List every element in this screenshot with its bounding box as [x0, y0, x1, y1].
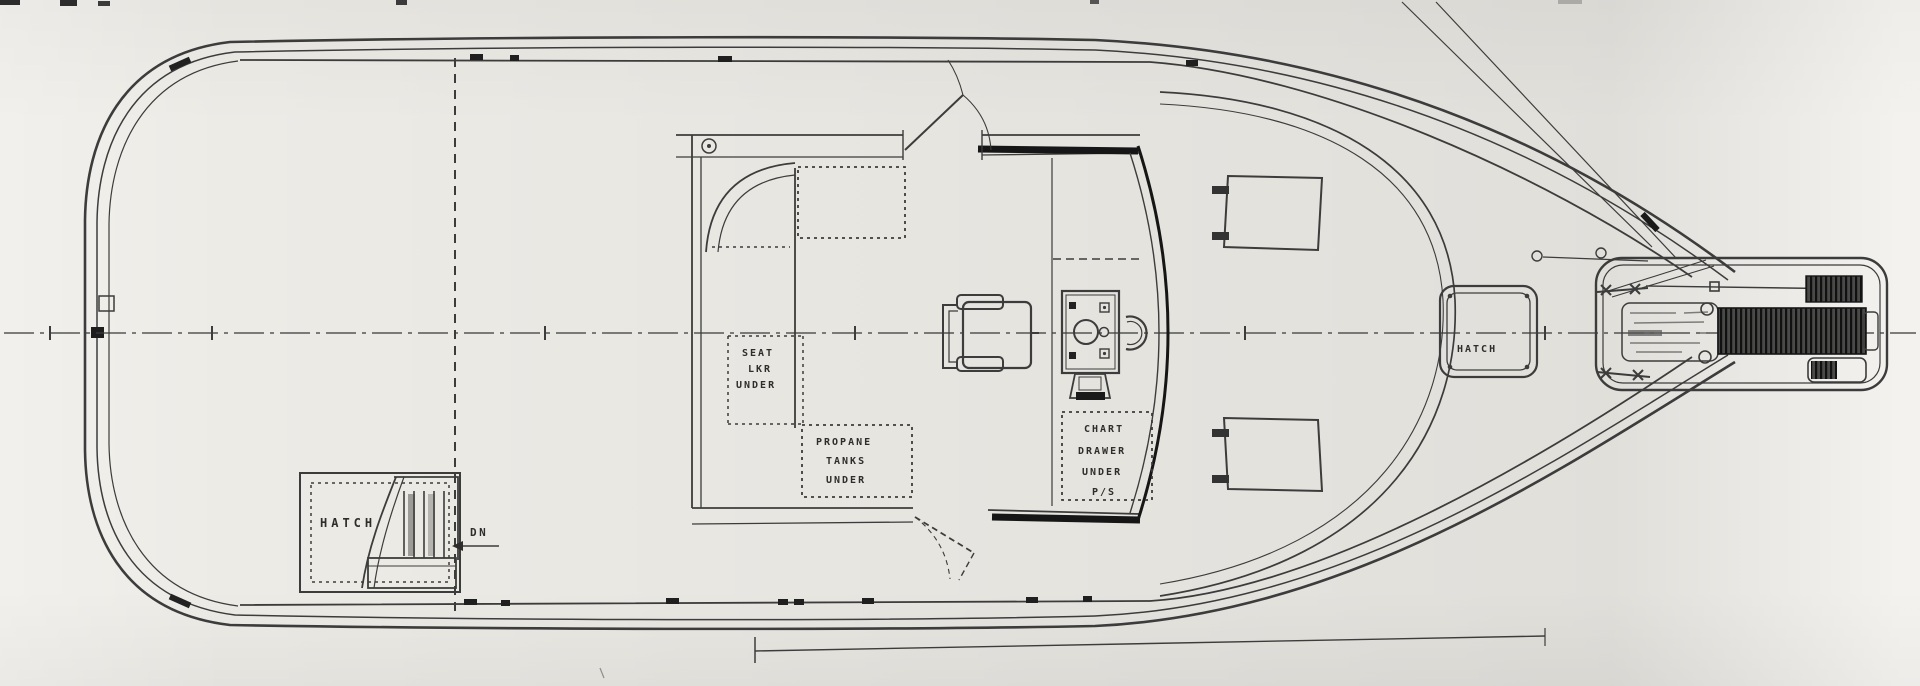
aft-hatch-label: HATCH — [320, 516, 376, 530]
chart-drawer-label-2: DRAWER — [1078, 446, 1126, 457]
trunk-cabin-outline — [1160, 92, 1455, 596]
windlass-spec-box — [1622, 303, 1718, 361]
coaming-heavy-line — [992, 517, 1140, 520]
console-switch — [1069, 352, 1076, 359]
side-gate-bottom — [915, 517, 974, 580]
cleat — [169, 594, 192, 608]
side-gate-top — [903, 60, 991, 160]
bow-pulpit — [1596, 248, 1887, 390]
dashed-seat-rect — [798, 167, 905, 238]
bow-rigging-lines — [1402, 2, 1676, 261]
chart-drawer-label-4: P/S — [1092, 487, 1116, 498]
dimension-line — [600, 628, 1545, 678]
transom-fitting — [99, 296, 114, 311]
scan-artifacts — [0, 0, 1582, 6]
propane-label-2: TANKS — [826, 456, 866, 467]
small-knob — [1100, 328, 1109, 337]
seat-locker-label-2: LKR — [748, 364, 772, 375]
flybridge-structure — [676, 60, 1168, 580]
scanned-deck-plan-sheet: HATCH DN — [0, 0, 1920, 686]
console-switch — [1069, 302, 1076, 309]
coaming-heavy-line — [978, 149, 1138, 151]
companionway-stairs — [362, 477, 458, 588]
deck-plan-drawing: HATCH DN — [0, 0, 1920, 686]
dn-label: DN — [470, 526, 488, 539]
helm-console — [1053, 259, 1147, 400]
seat-locker-label-1: SEAT — [742, 348, 774, 359]
chart-drawer-label-3: UNDER — [1082, 467, 1122, 478]
hinge — [1212, 475, 1229, 483]
propane-locker: PROPANE TANKS UNDER — [802, 425, 912, 497]
aft-deck-hatch: HATCH DN — [300, 473, 499, 592]
binnacle — [1070, 374, 1110, 400]
foredeck-hatch-label: HATCH — [1457, 344, 1497, 355]
chain-guide — [1701, 303, 1713, 315]
compass-gauge — [1074, 320, 1098, 344]
anchor-roller-bottom — [1808, 358, 1866, 382]
propane-label-1: PROPANE — [816, 437, 872, 448]
seat-locker: SEAT LKR UNDER — [728, 336, 803, 424]
anchor-chain-channel — [1718, 308, 1866, 354]
deck-box-port — [1212, 418, 1322, 491]
anchor-roller-top — [1806, 276, 1862, 302]
chart-drawer-label-1: CHART — [1084, 424, 1124, 435]
hinge — [1212, 186, 1229, 194]
hinge — [1212, 232, 1229, 240]
stanchion-base — [1596, 248, 1606, 258]
pulpit-cleat-bottom — [1597, 368, 1650, 380]
propane-label-3: UNDER — [826, 475, 866, 486]
hinge — [1212, 429, 1229, 437]
settee-group: SEAT LKR UNDER PROPANE TANKS UNDER — [706, 163, 912, 497]
deck-box-starboard — [1212, 176, 1322, 250]
seat-locker-label-3: UNDER — [736, 380, 776, 391]
